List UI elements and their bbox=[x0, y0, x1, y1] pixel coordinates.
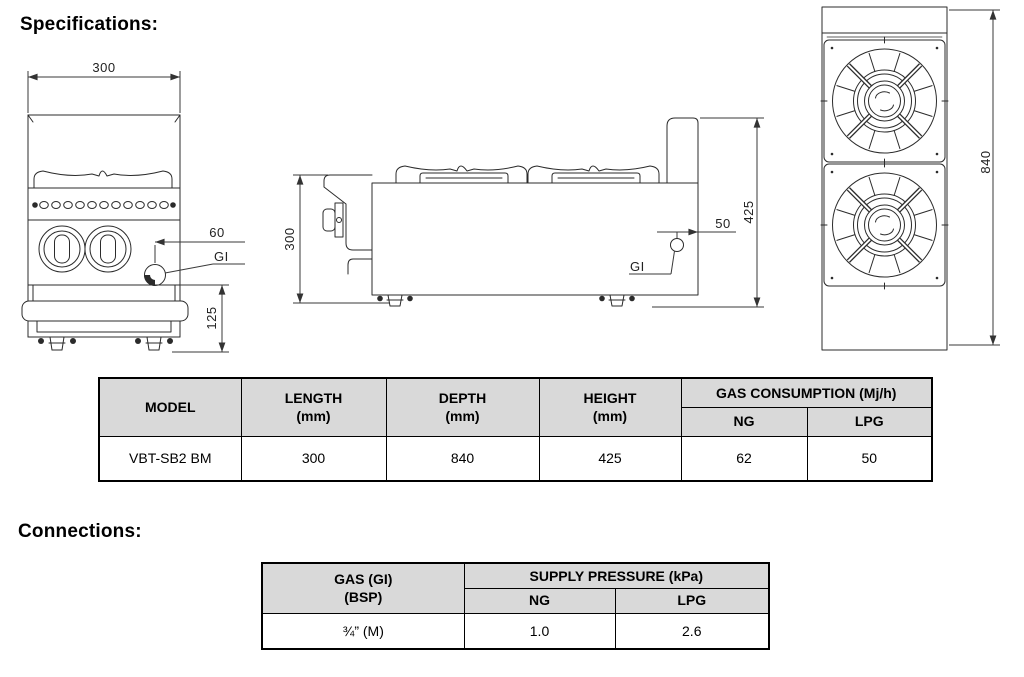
side-feet bbox=[377, 295, 635, 306]
conn-col-supply-pressure-header: SUPPLY PRESSURE (kPa) bbox=[464, 563, 769, 588]
conn-col-ng-header: NG bbox=[464, 588, 615, 613]
top-depth-label: 840 bbox=[978, 150, 993, 173]
side-body-outline bbox=[372, 183, 698, 295]
front-vent-holes bbox=[32, 202, 176, 209]
top-burner-trivet-1 bbox=[833, 49, 937, 153]
spec-lpg-value: 50 bbox=[807, 436, 932, 481]
connections-table: GAS (GI) (BSP) SUPPLY PRESSURE (kPa) NG … bbox=[261, 562, 770, 650]
conn-col-gas-header: GAS (GI) (BSP) bbox=[262, 563, 464, 613]
front-base-height-label: 125 bbox=[204, 306, 219, 329]
side-overall-height-label: 425 bbox=[741, 200, 756, 223]
side-inlet-offset-label: 50 bbox=[715, 216, 730, 231]
front-gi-label: GI bbox=[165, 249, 245, 273]
front-width-dimension: 300 bbox=[28, 60, 180, 113]
spec-ng-value: 62 bbox=[681, 436, 807, 481]
front-inlet-offset-dimension: 60 bbox=[155, 225, 245, 263]
front-base-height-dimension: 125 bbox=[172, 285, 229, 352]
conn-ng-value: 1.0 bbox=[464, 613, 615, 649]
front-base-section bbox=[22, 285, 188, 337]
svg-text:GI: GI bbox=[214, 249, 229, 264]
conn-col-lpg-header: LPG bbox=[615, 588, 769, 613]
front-width-dim-label: 300 bbox=[92, 60, 115, 75]
conn-table-row: ¾” (M) 1.0 2.6 bbox=[262, 613, 769, 649]
side-inlet-offset-dimension: 50 bbox=[657, 216, 736, 239]
spec-col-lpg-header: LPG bbox=[807, 407, 932, 436]
side-overall-height-dimension: 425 bbox=[652, 118, 764, 307]
spec-col-model-header: MODEL bbox=[99, 378, 241, 436]
front-gas-inlet bbox=[144, 265, 166, 287]
front-control-knobs bbox=[39, 226, 131, 272]
side-gi-label: GI bbox=[630, 259, 645, 274]
top-view-drawing: 840 bbox=[810, 0, 1024, 365]
front-inlet-offset-label: 60 bbox=[209, 225, 224, 240]
spec-model-value: VBT-SB2 BM bbox=[99, 436, 241, 481]
side-control-panel bbox=[323, 175, 372, 274]
spec-col-ng-header: NG bbox=[681, 407, 807, 436]
top-unit-outline bbox=[821, 7, 948, 350]
side-body-height-dimension: 300 bbox=[282, 175, 390, 303]
top-burner-trivet-2 bbox=[833, 173, 937, 277]
spec-table-row: VBT-SB2 BM 300 840 425 62 50 bbox=[99, 436, 932, 481]
connections-heading: Connections: bbox=[18, 521, 142, 543]
front-feet bbox=[38, 337, 173, 350]
side-view-drawing: 300 bbox=[280, 95, 780, 325]
spec-height-value: 425 bbox=[539, 436, 681, 481]
spec-col-depth-header: DEPTH (mm) bbox=[386, 378, 539, 436]
conn-gas-value: ¾” (M) bbox=[262, 613, 464, 649]
spec-sheet-page: Specifications: 300 bbox=[0, 0, 1024, 677]
side-burner-profiles bbox=[396, 166, 659, 183]
conn-lpg-value: 2.6 bbox=[615, 613, 769, 649]
top-depth-dimension: 840 bbox=[949, 10, 1000, 345]
side-body-height-label: 300 bbox=[282, 227, 297, 250]
specifications-table: MODEL LENGTH (mm) DEPTH (mm) HEIGHT (mm)… bbox=[98, 377, 933, 482]
spec-depth-value: 840 bbox=[386, 436, 539, 481]
spec-col-length-header: LENGTH (mm) bbox=[241, 378, 386, 436]
spec-length-value: 300 bbox=[241, 436, 386, 481]
side-gas-inlet: GI bbox=[629, 239, 684, 275]
side-splashback bbox=[667, 118, 698, 183]
spec-col-height-header: HEIGHT (mm) bbox=[539, 378, 681, 436]
specifications-heading: Specifications: bbox=[20, 14, 158, 36]
front-view-drawing: 300 bbox=[10, 45, 260, 365]
spec-col-gas-consumption-header: GAS CONSUMPTION (Mj/h) bbox=[681, 378, 932, 407]
